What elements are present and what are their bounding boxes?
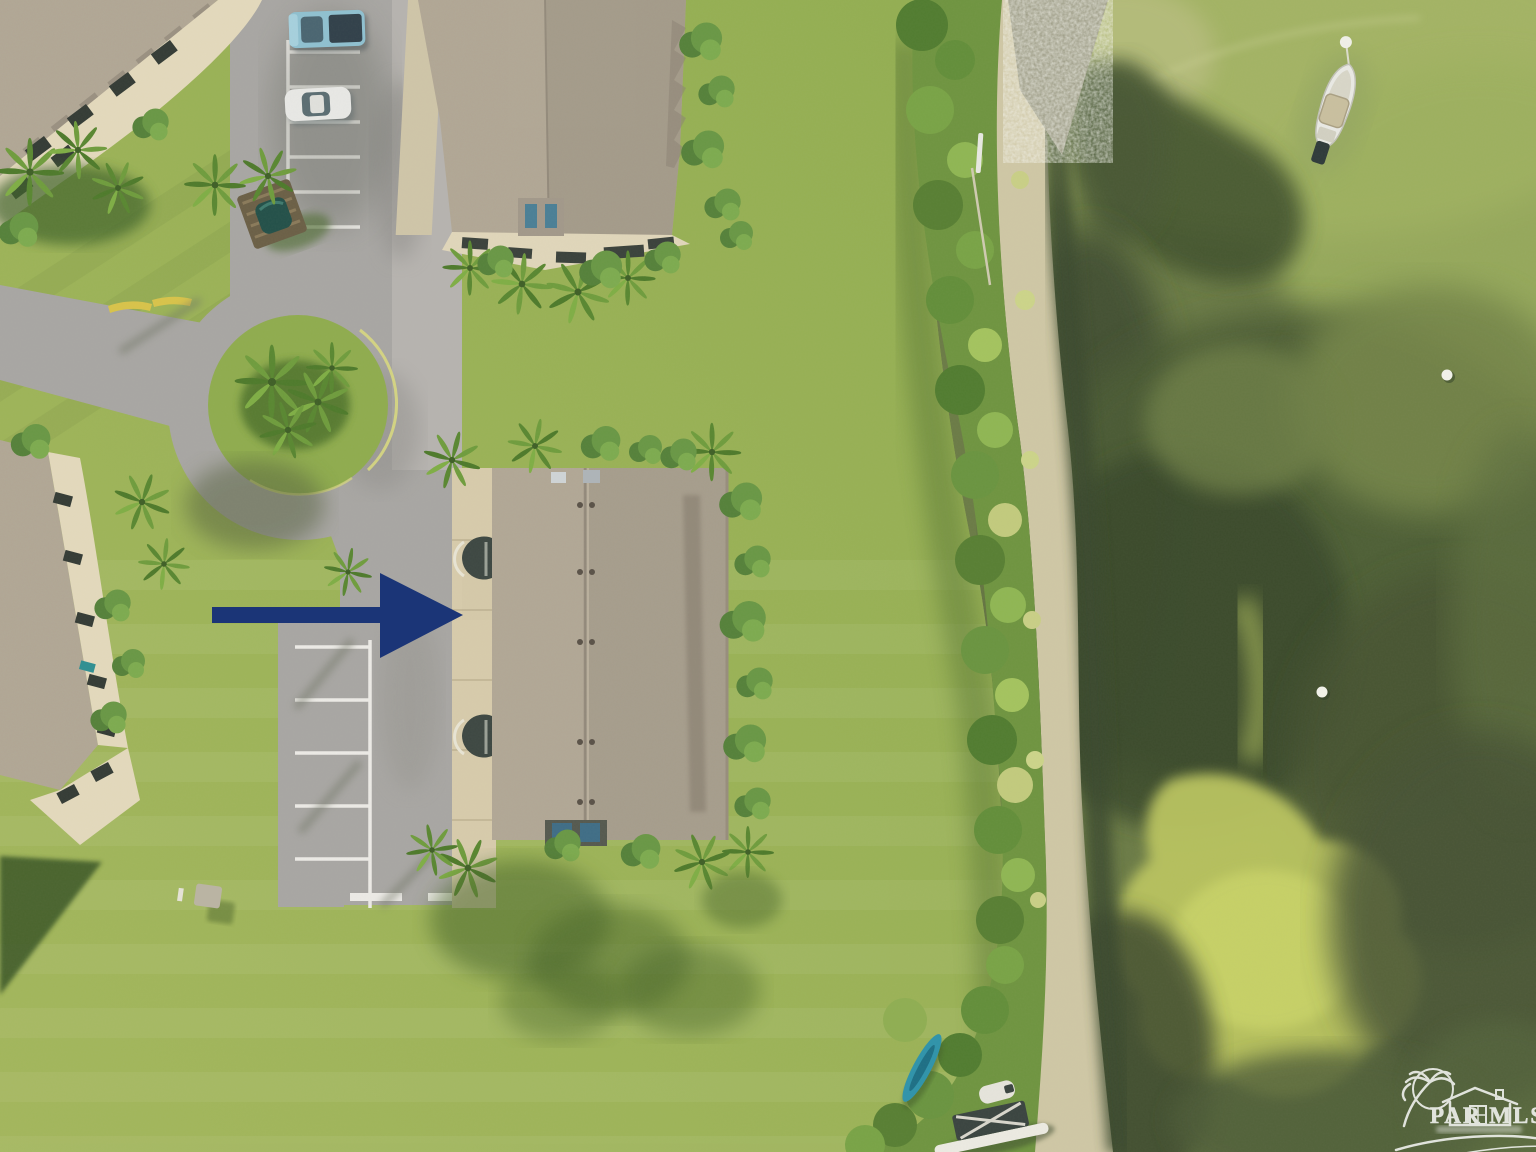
watermark-title: PAR MLS bbox=[1430, 1103, 1536, 1128]
photo-grain bbox=[0, 0, 1536, 1152]
aerial-photo: PAR MLS bbox=[0, 0, 1536, 1152]
watermark-tagline-bar bbox=[1436, 1126, 1522, 1133]
